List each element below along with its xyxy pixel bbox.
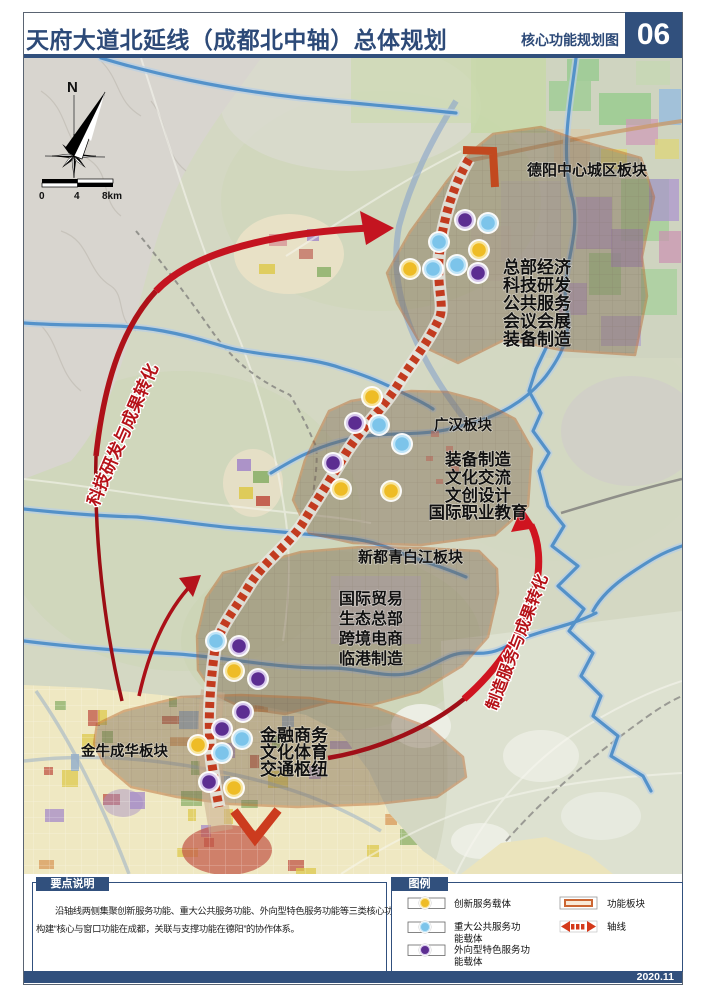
svg-text:装备制造: 装备制造: [502, 329, 572, 349]
svg-text:公共服务: 公共服务: [503, 293, 572, 313]
svg-text:4: 4: [74, 191, 80, 202]
svg-text:临港制造: 临港制造: [339, 649, 404, 668]
svg-text:重大公共服务功: 重大公共服务功: [454, 921, 521, 933]
svg-text:能载体: 能载体: [454, 956, 483, 968]
svg-text:跨境电商: 跨境电商: [339, 629, 403, 648]
svg-text:轴线: 轴线: [607, 921, 627, 933]
svg-text:新都青白江板块: 新都青白江板块: [358, 548, 464, 566]
svg-text:能载体: 能载体: [454, 933, 483, 945]
svg-text:N: N: [67, 79, 78, 96]
svg-text:金融商务: 金融商务: [259, 725, 329, 745]
svg-text:外向型特色服务功: 外向型特色服务功: [454, 944, 530, 956]
svg-text:生态总部: 生态总部: [339, 609, 403, 628]
svg-text:科技研发: 科技研发: [503, 275, 572, 295]
svg-text:文创设计: 文创设计: [445, 485, 512, 505]
svg-text:国际贸易: 国际贸易: [339, 589, 403, 608]
svg-text:创新服务载体: 创新服务载体: [454, 898, 512, 910]
svg-text:国际职业教育: 国际职业教育: [429, 502, 528, 522]
svg-text:0: 0: [39, 191, 45, 202]
svg-text:总部经济: 总部经济: [503, 257, 572, 277]
svg-text:广汉板块: 广汉板块: [434, 416, 492, 434]
svg-text:会议会展: 会议会展: [503, 311, 571, 331]
svg-text:金牛成华板块: 金牛成华板块: [80, 742, 168, 760]
svg-text:交通枢纽: 交通枢纽: [260, 759, 328, 779]
svg-text:文化交流: 文化交流: [445, 467, 512, 487]
svg-text:文化体育: 文化体育: [260, 742, 328, 762]
svg-text:装备制造: 装备制造: [445, 449, 512, 469]
svg-text:8km: 8km: [102, 191, 122, 202]
svg-text:功能板块: 功能板块: [607, 898, 646, 910]
svg-text:德阳中心城区板块: 德阳中心城区板块: [527, 161, 648, 179]
